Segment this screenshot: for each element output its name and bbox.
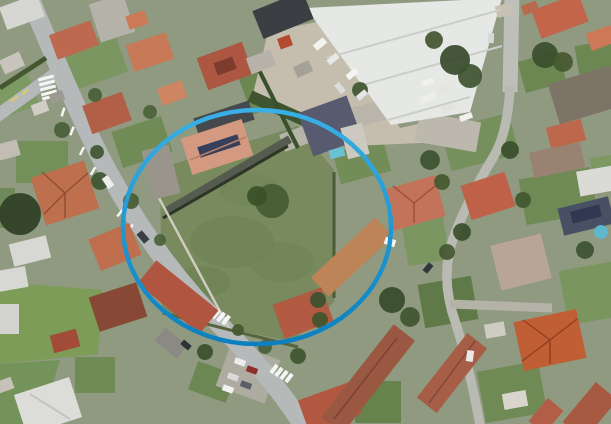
tree: [458, 64, 482, 88]
driveway-lane: [450, 304, 552, 308]
tree: [420, 150, 440, 170]
tree: [232, 324, 244, 336]
tree: [247, 186, 267, 206]
tree: [400, 307, 420, 327]
grass-shade: [250, 242, 314, 282]
tree: [515, 192, 531, 208]
vehicle: [487, 19, 494, 30]
tree: [154, 234, 166, 246]
aerial-photo: [0, 0, 611, 424]
tree: [425, 31, 443, 49]
tree: [143, 105, 157, 119]
tree: [453, 223, 471, 241]
tree: [576, 241, 594, 259]
tree: [88, 88, 102, 102]
tree: [379, 287, 405, 313]
building-roof: [0, 304, 19, 334]
tree: [54, 122, 70, 138]
satellite-map-view: [0, 0, 611, 424]
tree: [501, 141, 519, 159]
tree: [0, 193, 41, 235]
vehicle: [488, 33, 495, 43]
tree: [434, 174, 450, 190]
tree: [90, 145, 104, 159]
swimming-pool: [594, 225, 608, 239]
tree: [310, 292, 326, 308]
garden-patch: [75, 357, 115, 393]
tree: [197, 344, 213, 360]
tree: [553, 52, 573, 72]
tree: [439, 244, 455, 260]
tree: [290, 348, 306, 364]
